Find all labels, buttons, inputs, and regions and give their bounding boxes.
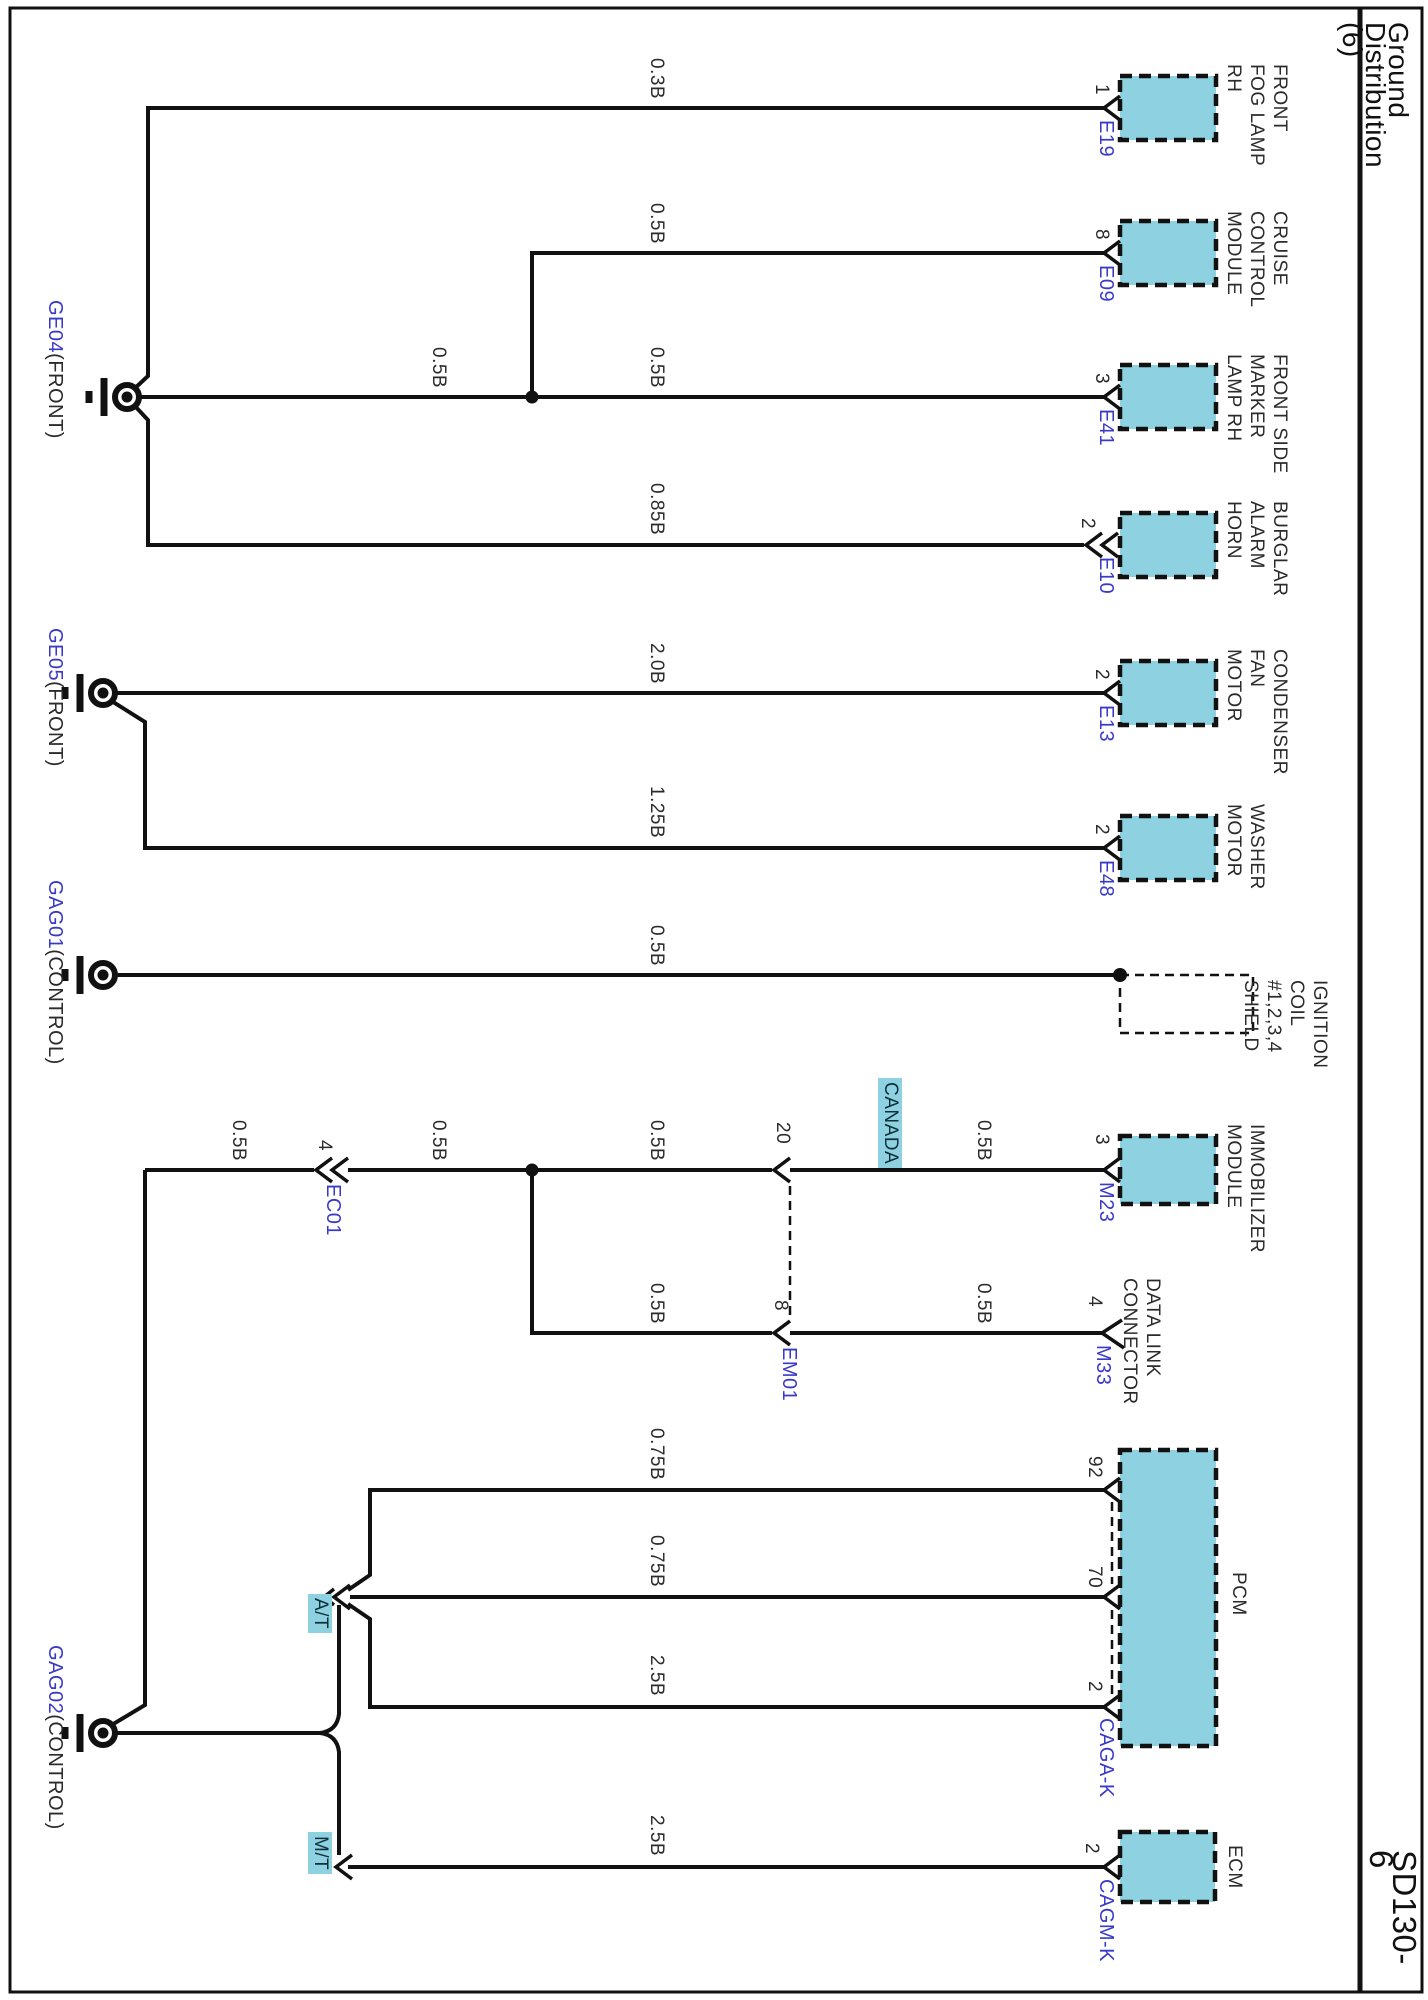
component-name: IMMOBILIZER MODULE — [1222, 1124, 1268, 1253]
pin-number: 3 — [1090, 1134, 1113, 1145]
pin-number: 2 — [1090, 824, 1113, 835]
wire-size-label: 0.5B — [645, 347, 668, 388]
transmission-tag-at: A/T — [308, 1594, 332, 1633]
component-name: IGNITION COIL #1,2,3,4 SHIELD — [1239, 980, 1331, 1077]
component-name: FRONT FOG LAMP RH — [1222, 64, 1291, 166]
sheet-code: SD130-6 — [1370, 1850, 1416, 1965]
ground-label-gag02: GAG02(CONTROL) — [43, 1645, 66, 1830]
wire-size-label: 0.5B — [645, 203, 668, 244]
connector-id: E10 — [1094, 557, 1117, 594]
connector-id: E09 — [1094, 265, 1117, 302]
transmission-tag-mt: M/T — [308, 1832, 332, 1874]
ground-ge05-icon — [65, 674, 115, 712]
pin-number: 2 — [1083, 1681, 1106, 1692]
region-tag-canada: CANADA — [878, 1078, 902, 1168]
ground-ge04-icon — [89, 378, 139, 416]
wire-size-label: 0.75B — [645, 1428, 668, 1480]
component-name: ECM — [1223, 1845, 1246, 1889]
connector-id: EM01 — [777, 1347, 800, 1401]
box-pcm — [1120, 1450, 1216, 1746]
connector-id: CAGA-K — [1094, 1718, 1117, 1798]
wire-size-label: 0.5B — [645, 925, 668, 966]
ground-symbols — [65, 378, 139, 1752]
connector-boxes — [1120, 76, 1253, 1902]
box-e19 — [1120, 76, 1216, 140]
wire-size-label: 2.0B — [645, 643, 668, 684]
component-name: BURGLAR ALARM HORN — [1222, 501, 1291, 596]
wire-size-label: 0.5B — [972, 1283, 995, 1324]
component-name: CRUISE CONTROL MODULE — [1222, 211, 1291, 307]
box-e48 — [1120, 816, 1216, 880]
ground-label-ge04: GE04(FRONT) — [43, 300, 66, 439]
component-name: DATA LINK CONNECTOR — [1118, 1278, 1164, 1405]
wire-size-label: 0.3B — [645, 58, 668, 99]
connector-id: EC01 — [321, 1184, 344, 1236]
wire-size-label: 0.5B — [645, 1120, 668, 1161]
wire-size-label: 2.5B — [645, 1655, 668, 1696]
box-e13 — [1120, 661, 1216, 725]
wiring-diagram-page: Ground Distribution (6) SD130-6 GE04(FRO… — [0, 0, 1428, 2000]
wire-size-label: 0.5B — [227, 1120, 250, 1161]
wire-size-label: 1.25B — [645, 786, 668, 838]
wires — [110, 108, 1127, 1867]
component-name: FRONT SIDE MARKER LAMP RH — [1222, 354, 1291, 474]
diagram-graphics — [0, 0, 1428, 2000]
wire-size-label: 0.5B — [427, 1120, 450, 1161]
ground-id: GAG02 — [44, 1645, 66, 1714]
connector-id: E19 — [1094, 120, 1117, 157]
connector-id: E41 — [1094, 409, 1117, 446]
box-e10 — [1120, 513, 1216, 577]
ground-label-ge05: GE05(FRONT) — [43, 628, 66, 767]
wire-size-label: 2.5B — [645, 1815, 668, 1856]
wire-size-label: 0.5B — [427, 347, 450, 388]
pin-number: 92 — [1083, 1456, 1106, 1478]
box-m23 — [1120, 1136, 1216, 1204]
box-e41 — [1120, 365, 1216, 429]
pin-number: 20 — [771, 1122, 794, 1144]
connector-id: CAGM-K — [1094, 1879, 1117, 1962]
pin-number: 4 — [1083, 1296, 1106, 1307]
wire-size-label: 0.75B — [645, 1535, 668, 1587]
ground-gag01-icon — [65, 956, 115, 994]
pin-number: 1 — [1090, 84, 1113, 95]
wire-size-label: 0.5B — [645, 1283, 668, 1324]
ground-id: GAG01 — [44, 880, 66, 949]
ground-id: GE05 — [44, 628, 66, 681]
connector-id: E13 — [1094, 705, 1117, 742]
box-e09 — [1120, 221, 1216, 285]
box-ignition-coil-shield — [1120, 975, 1253, 1033]
pin-number: 8 — [1090, 229, 1113, 240]
pin-number: 2 — [1080, 1843, 1103, 1854]
ground-location: (FRONT) — [44, 353, 66, 439]
ground-location: (CONTROL) — [44, 949, 66, 1065]
pin-number: 2 — [1076, 518, 1099, 529]
pin-number: 2 — [1090, 669, 1113, 680]
wire-size-label: 0.5B — [972, 1120, 995, 1161]
pin-number: 3 — [1090, 373, 1113, 384]
page-title: Ground Distribution (6) — [1341, 22, 1410, 168]
ground-gag02-icon — [65, 1714, 115, 1752]
connector-id: M33 — [1091, 1345, 1114, 1385]
connector-id: E48 — [1094, 860, 1117, 897]
box-ecm — [1120, 1832, 1215, 1902]
component-name: PCM — [1227, 1572, 1250, 1616]
pin-number: 70 — [1083, 1566, 1106, 1588]
component-name: CONDENSER FAN MOTOR — [1222, 649, 1291, 775]
connector-id: M23 — [1094, 1182, 1117, 1222]
pin-number: 4 — [313, 1140, 336, 1151]
wire-size-label: 0.85B — [645, 483, 668, 535]
ground-location: (CONTROL) — [44, 1714, 66, 1830]
pin-number: 8 — [769, 1300, 792, 1311]
ground-location: (FRONT) — [44, 681, 66, 767]
component-name: WASHER MOTOR — [1222, 804, 1268, 890]
ground-id: GE04 — [44, 300, 66, 353]
ground-label-gag01: GAG01(CONTROL) — [43, 880, 66, 1065]
